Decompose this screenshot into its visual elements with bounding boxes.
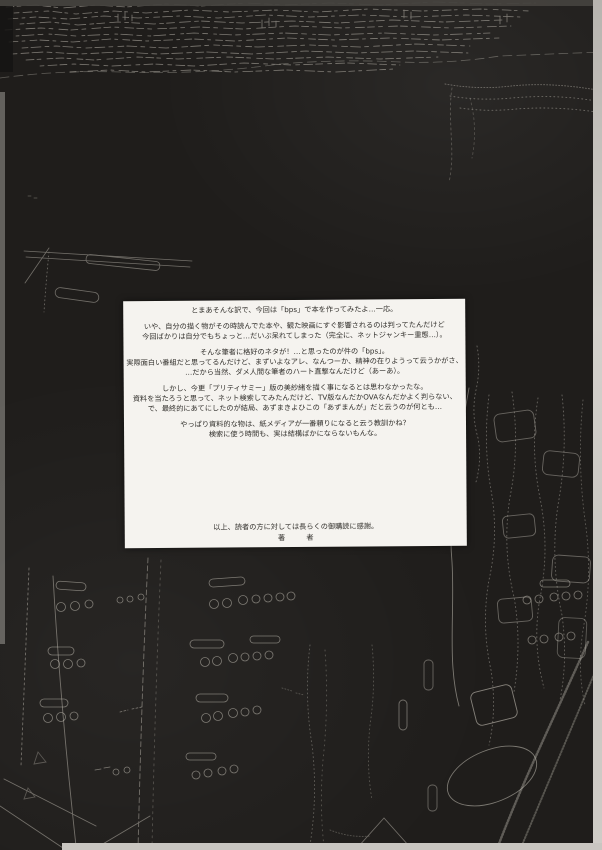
- afterword-paragraph: しかし、今更「プリティサミー」版の美紗緒を描く事になるとは思わなかったな。 資料…: [124, 382, 466, 414]
- afterword-line: で、最終的にあてにしたのが結局、あずまきよひこの「あずまんが」だと云うのが何とも…: [124, 402, 466, 414]
- afterword-paragraph: そんな筆者に格好のネタが！…と思ったのが件の「bps」。 実際面白い番組だと思っ…: [123, 346, 465, 378]
- closing-block: 以上、読者の方に対しては長らくの御購読に感謝。 著 者: [125, 520, 467, 544]
- afterword-line: 検索に使う時間も、実は結構ばかにならないもんな。: [124, 428, 466, 440]
- author-signature: 著 者: [125, 531, 467, 544]
- afterword-paper: とまあそんな訳で、今回は「bps」で本を作ってみたよ…一応。 いや、自分の描く物…: [123, 299, 467, 548]
- afterword-paragraph: やっぱり資料的な物は、紙メディアが一番頼りになると云う教訓かね？ 検索に使う時間…: [124, 418, 466, 440]
- scan-edge-top: [0, 0, 602, 6]
- scan-edge-left: [0, 92, 5, 644]
- afterword-line: 今回ばかりは自分でもちょっと…だいぶ呆れてしまった（完全に、ネットジャンキー重態…: [123, 330, 465, 342]
- scan-edge-bottom: [62, 843, 602, 850]
- scan-corner-shadow: [0, 6, 13, 72]
- scan-edge-right: [593, 0, 602, 850]
- afterword-paragraph: いや、自分の描く物がその時読んでた本や、観た映画にすぐ影響されるのは判ってたんだ…: [123, 320, 465, 342]
- afterword-line: とまあそんな訳で、今回は「bps」で本を作ってみたよ…一応。: [123, 304, 465, 316]
- scanned-page: とまあそんな訳で、今回は「bps」で本を作ってみたよ…一応。 いや、自分の描く物…: [0, 0, 602, 850]
- afterword-paragraph: とまあそんな訳で、今回は「bps」で本を作ってみたよ…一応。: [123, 304, 465, 316]
